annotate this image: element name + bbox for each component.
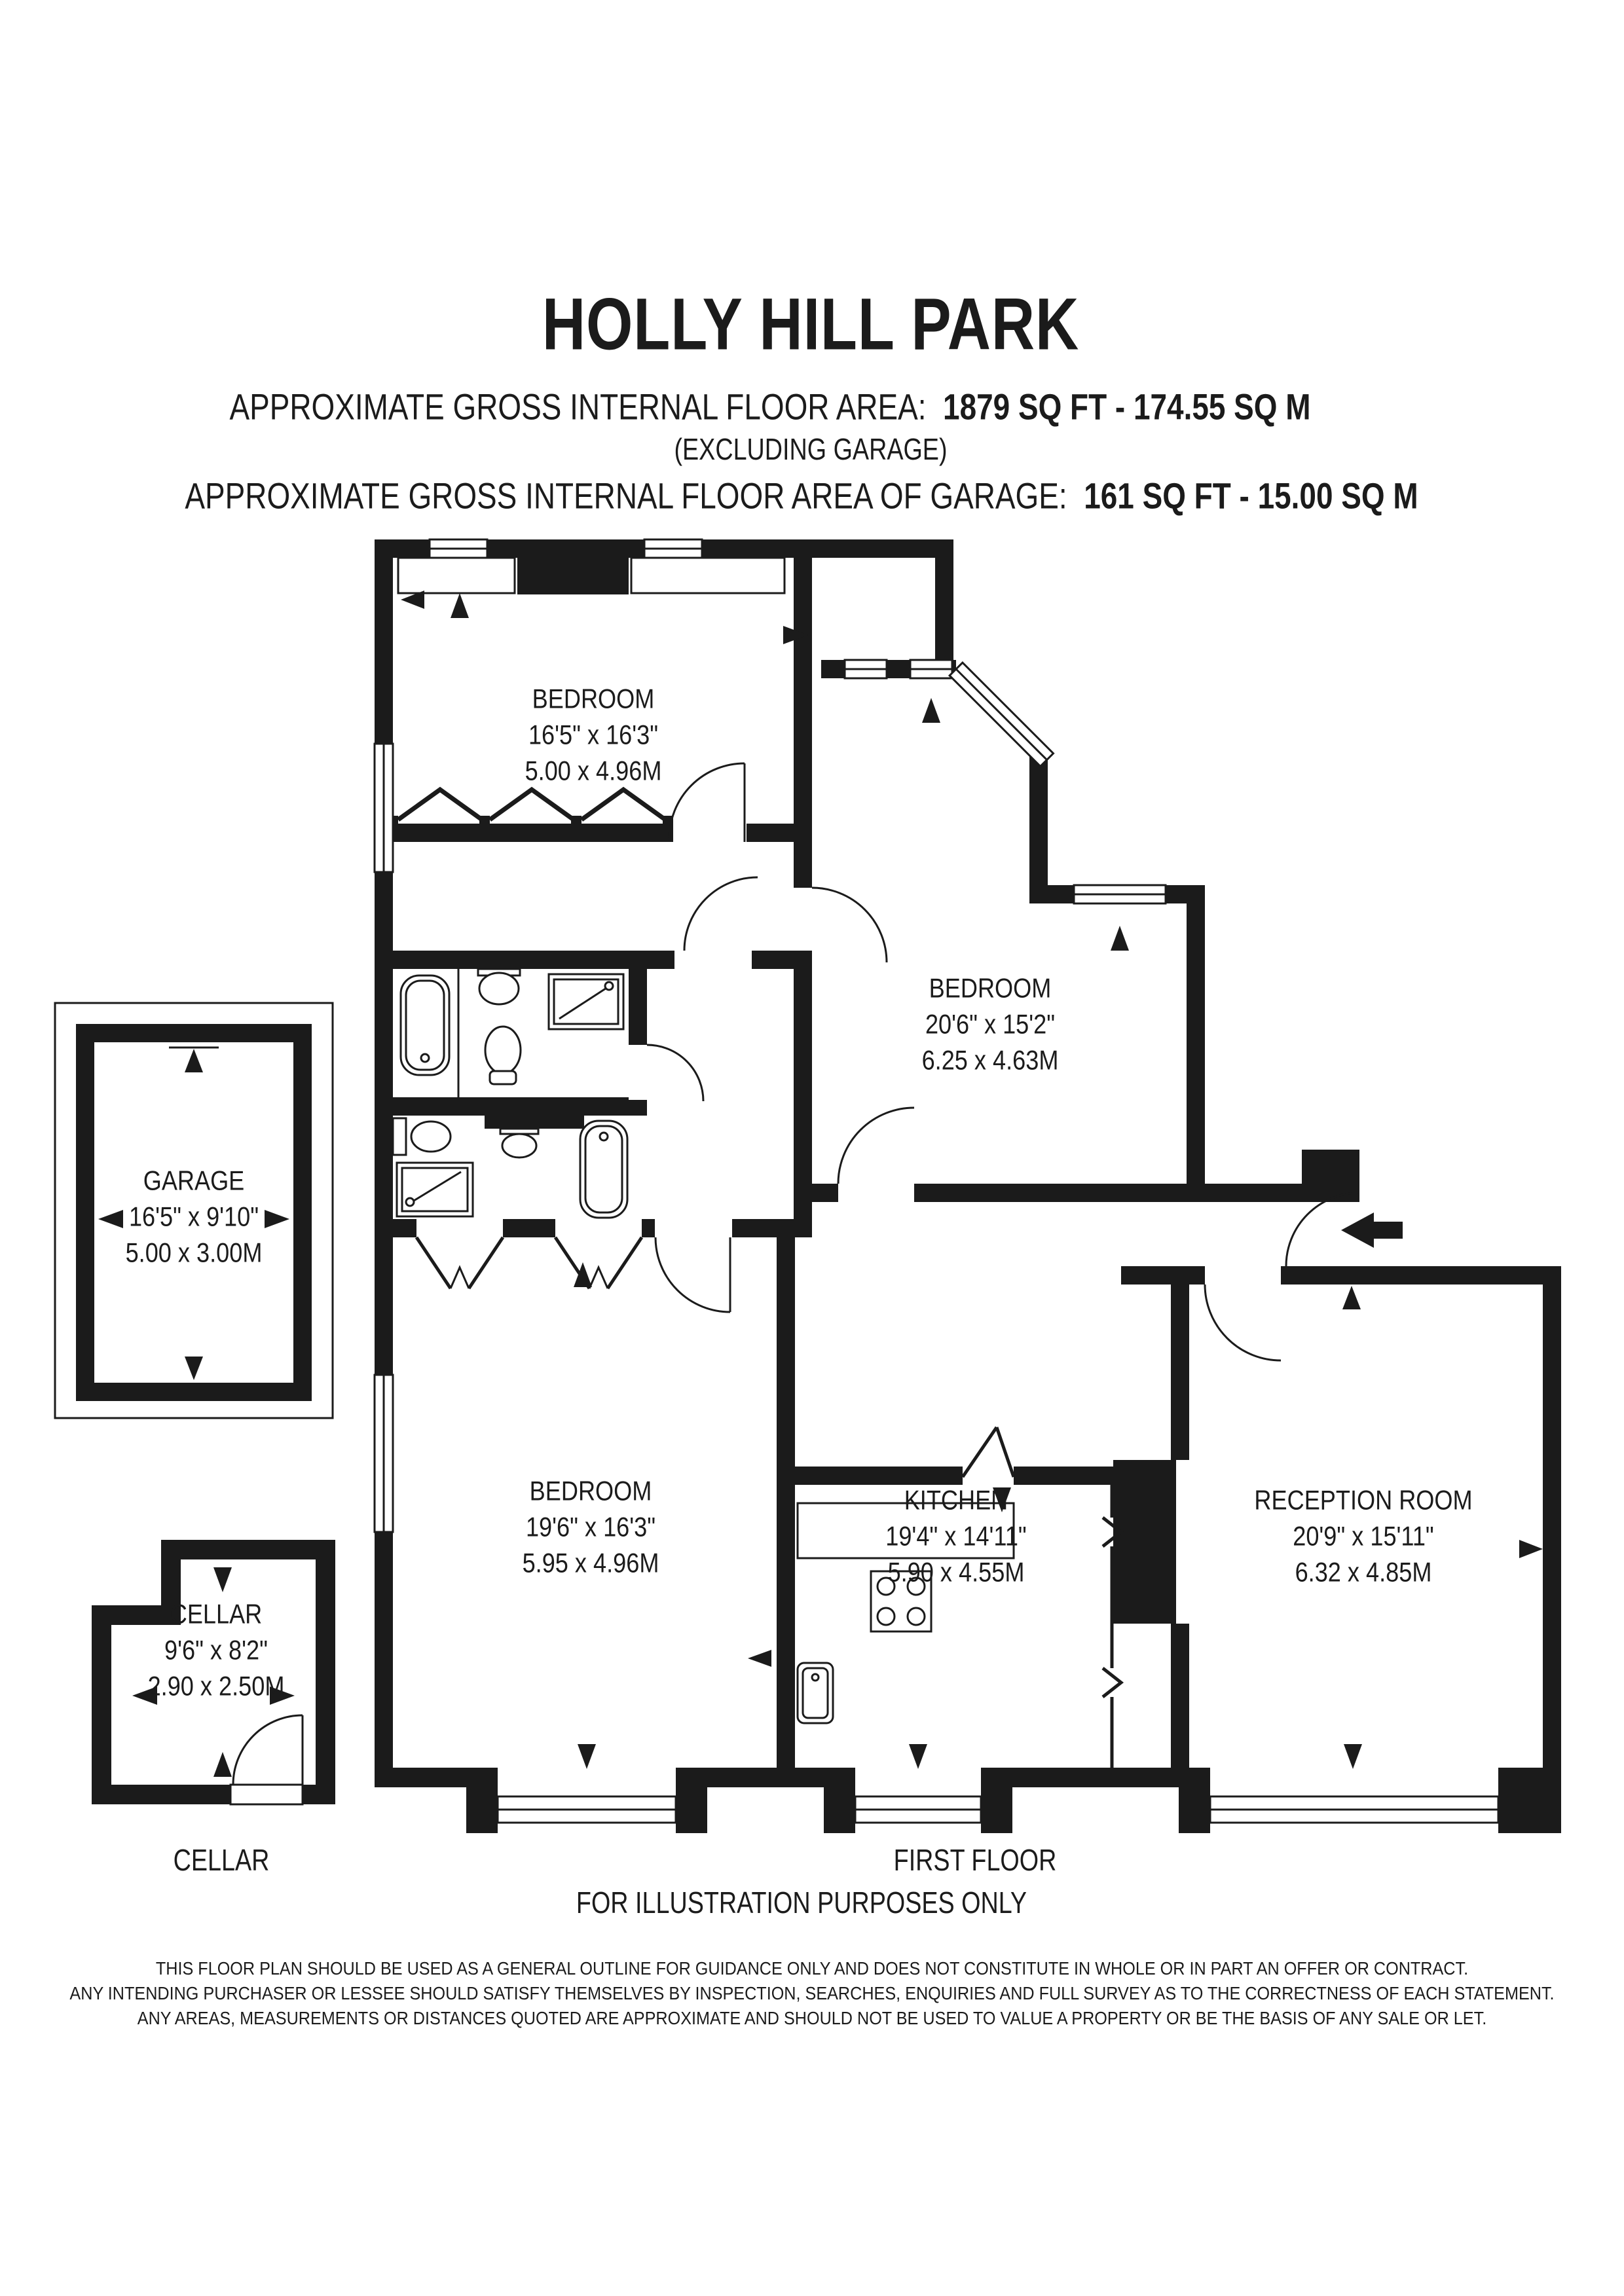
- room-label-bedroom2: BEDROOM 20'6" x 15'2" 6.25 x 4.63M: [922, 970, 1059, 1078]
- door-arc: [669, 763, 745, 839]
- garage-area-label: APPROXIMATE GROSS INTERNAL FLOOR AREA OF…: [185, 475, 1067, 517]
- room-label-bedroom1: BEDROOM 16'5" x 16'3" 5.00 x 4.96M: [525, 681, 662, 789]
- room-label-garage: GARAGE 16'5" x 9'10" 5.00 x 3.00M: [126, 1163, 263, 1271]
- window: [375, 1375, 393, 1532]
- fixtures: [393, 969, 1014, 1723]
- bathtub-icon: [401, 975, 449, 1075]
- kitchen-sink-icon: [798, 1663, 833, 1723]
- toilet-icon: [485, 1027, 521, 1084]
- floor-area-value: 1879 SQ FT - 174.55 SQ M: [943, 386, 1310, 428]
- sink-icon: [478, 969, 520, 1004]
- folding-door: [963, 1427, 1014, 1477]
- room-label-bedroom3: BEDROOM 19'6" x 16'3" 5.95 x 4.96M: [523, 1473, 659, 1581]
- window: [1210, 1796, 1498, 1823]
- shower-icon: [549, 974, 623, 1029]
- illustration-note: FOR ILLUSTRATION PURPOSES ONLY: [576, 1885, 1027, 1920]
- window-diagonal: [950, 663, 1053, 766]
- floor-area-label: APPROXIMATE GROSS INTERNAL FLOOR AREA:: [229, 386, 926, 428]
- bathtub-icon: [580, 1121, 627, 1218]
- window: [644, 539, 702, 558]
- chimney-breast: [1113, 1460, 1176, 1624]
- door-arc: [233, 1715, 303, 1785]
- first-floor-label: FIRST FLOOR: [894, 1842, 1057, 1878]
- floor-area-line: APPROXIMATE GROSS INTERNAL FLOOR AREA: 1…: [229, 386, 1310, 428]
- door-arc: [684, 877, 758, 951]
- entrance-arrow-icon: [1341, 1212, 1403, 1248]
- window: [498, 1796, 676, 1823]
- door-arc: [655, 1237, 730, 1312]
- garage-area-value: 161 SQ FT - 15.00 SQ M: [1084, 475, 1418, 517]
- window: [430, 539, 487, 558]
- door-arc: [812, 888, 887, 962]
- door-arc: [647, 1045, 703, 1101]
- disclaimer-line: THIS FLOOR PLAN SHOULD BE USED AS A GENE…: [156, 1956, 1468, 1981]
- wardrobe-folding-doors: [398, 790, 665, 820]
- chimney-breast: [517, 558, 629, 594]
- room-label-reception: RECEPTION ROOM 20'9" x 15'11" 6.32 x 4.8…: [1254, 1482, 1472, 1590]
- toilet-icon: [393, 1118, 451, 1155]
- disclaimer-line: ANY INTENDING PURCHASER OR LESSEE SHOULD…: [69, 1981, 1554, 2006]
- door-arc: [838, 1108, 914, 1184]
- window: [910, 660, 952, 678]
- door-arc: [1205, 1285, 1281, 1360]
- window: [845, 660, 887, 678]
- cellar-floor-label: CELLAR: [174, 1842, 270, 1878]
- room-label-kitchen: KITCHEN 19'4" x 14'11" 5.90 x 4.55M: [885, 1482, 1027, 1590]
- double-doors: [416, 1237, 642, 1288]
- window: [375, 744, 393, 872]
- excluding-note: (EXCLUDING GARAGE): [674, 431, 947, 467]
- page-title: HOLLY HILL PARK: [542, 282, 1079, 367]
- window: [1074, 885, 1166, 903]
- room-label-cellar: CELLAR 9'6" x 8'2" 2.90 x 2.50M: [148, 1596, 285, 1704]
- disclaimer-line: ANY AREAS, MEASUREMENTS OR DISTANCES QUO…: [138, 2006, 1486, 2031]
- window: [855, 1796, 981, 1823]
- sink-icon: [500, 1129, 538, 1157]
- garage-area-line: APPROXIMATE GROSS INTERNAL FLOOR AREA OF…: [185, 475, 1418, 517]
- shower-icon: [397, 1163, 473, 1216]
